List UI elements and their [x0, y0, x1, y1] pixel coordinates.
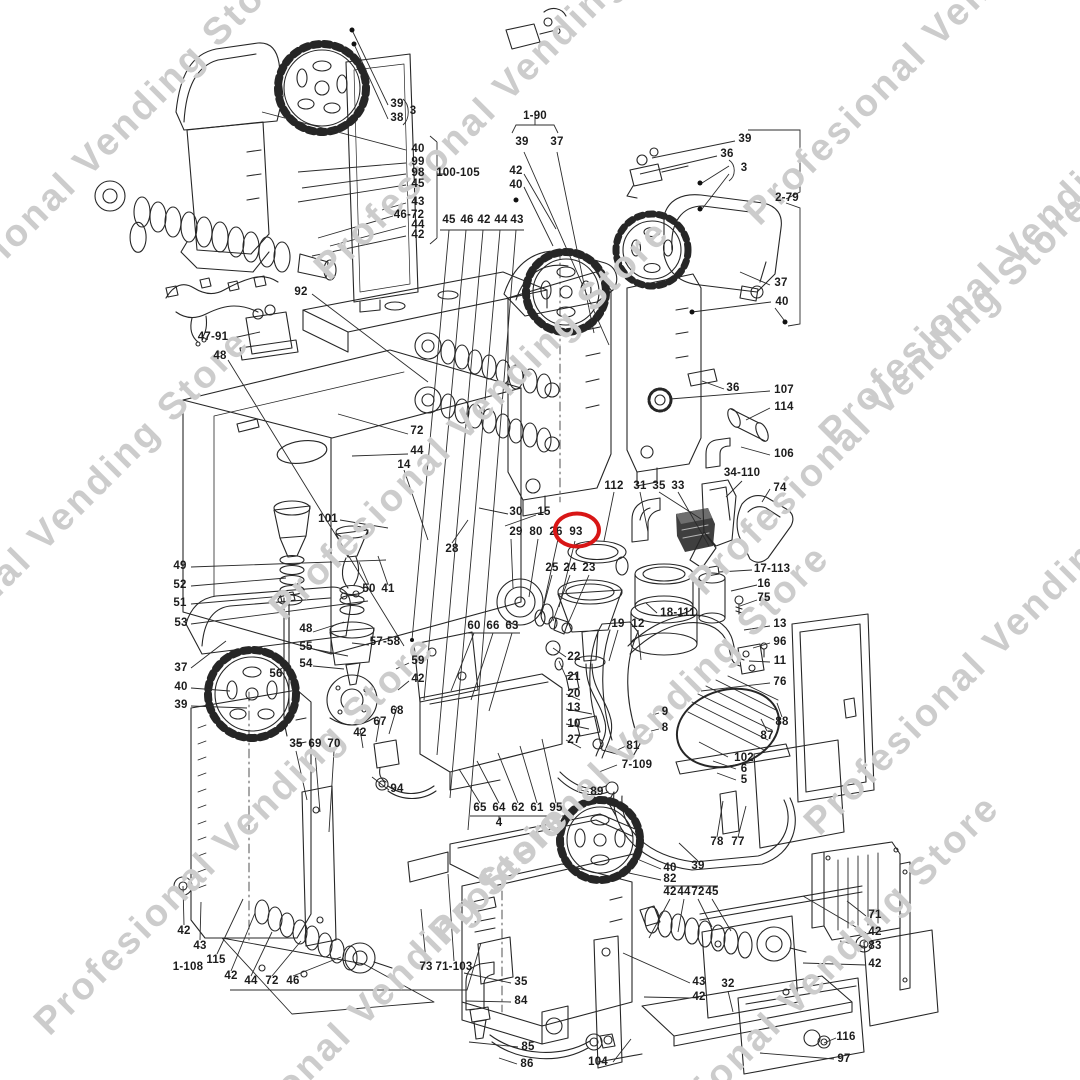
exploded-diagram-line-art [0, 0, 1080, 1080]
highlight-circle [553, 512, 601, 549]
parts-diagram: Profesional Vending StoreProfesional Ven… [0, 0, 1080, 1080]
part-shapes [95, 9, 938, 1074]
